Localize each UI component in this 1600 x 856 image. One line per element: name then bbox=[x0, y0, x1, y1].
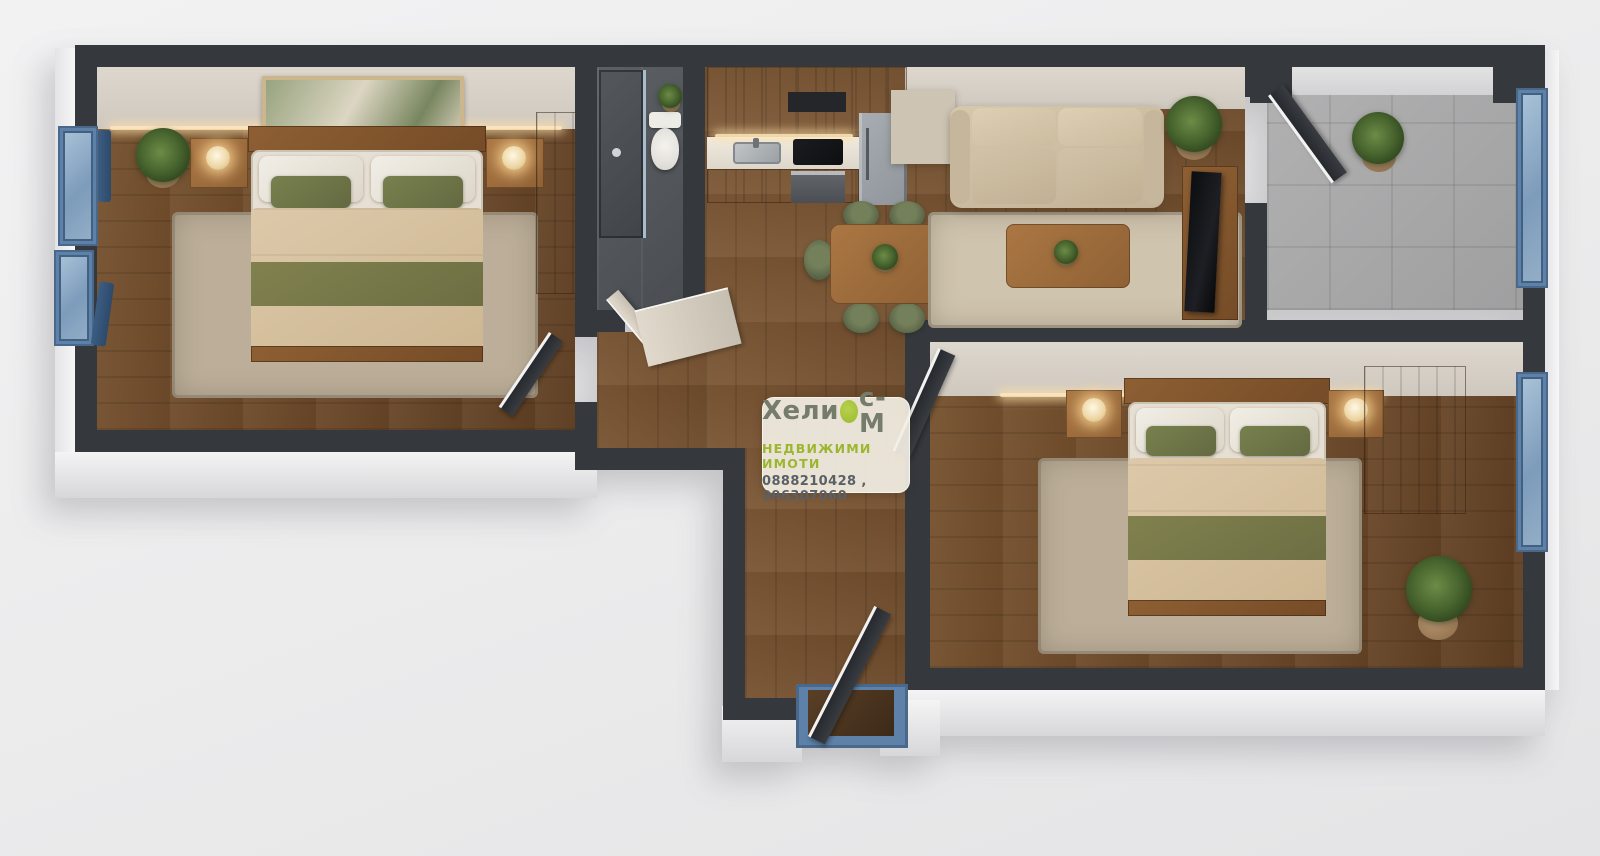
brand-o-icon bbox=[840, 400, 858, 423]
range-hood bbox=[788, 92, 846, 112]
bedroom1-duvet-stripe bbox=[251, 262, 483, 306]
kitchen-cove-light bbox=[715, 134, 853, 138]
bedroom1-pillow-olive-left bbox=[271, 176, 351, 208]
bedroom1-bed-footboard bbox=[251, 346, 483, 362]
floorplan-canvas: Хелис-М НЕДВИЖИМИ ИМОТИ 0888210428 , 096… bbox=[0, 0, 1600, 856]
wall-bathroom-kitchen bbox=[683, 45, 705, 332]
watermark-subtitle: НЕДВИЖИМИ ИМОТИ bbox=[762, 441, 910, 471]
bedroom1-bed bbox=[251, 150, 483, 362]
dining-chair-bottom-right bbox=[889, 303, 925, 333]
shower bbox=[599, 70, 646, 238]
wall-bedroom2-bottom bbox=[905, 668, 1545, 690]
bedroom2-wardrobe bbox=[1364, 366, 1466, 514]
bedroom2-bed-footboard bbox=[1128, 600, 1326, 616]
apartment-floorplan: Хелис-М НЕДВИЖИМИ ИМОТИ 0888210428 , 096… bbox=[0, 0, 1600, 856]
wall-corridor-bottom bbox=[575, 448, 745, 470]
bedroom2-window bbox=[1516, 372, 1548, 552]
balcony-wall-band bbox=[1267, 67, 1523, 95]
sofa-arm-left bbox=[950, 110, 970, 204]
wall-bedroom1-bottom bbox=[75, 430, 597, 452]
wall-hallway-bottom bbox=[723, 698, 803, 720]
exterior-wall-face-bottom-bedroom2 bbox=[905, 690, 1545, 736]
bedroom2-pillow-olive-left bbox=[1146, 426, 1216, 456]
bedroom2-lamp-left bbox=[1082, 398, 1106, 422]
sofa bbox=[950, 106, 1164, 208]
refrigerator-handle bbox=[866, 128, 869, 180]
wall-top bbox=[75, 45, 1545, 67]
sofa-seat-cushion-left bbox=[972, 148, 1056, 204]
bedroom2-bed bbox=[1128, 402, 1326, 616]
watermark-brand: Хелис-М bbox=[762, 385, 910, 437]
bedroom2-pillow-olive-right bbox=[1240, 426, 1310, 456]
watermark-badge: Хелис-М НЕДВИЖИМИ ИМОТИ 0888210428 , 096… bbox=[762, 397, 910, 493]
bedroom1-window-lower bbox=[54, 250, 94, 346]
sofa-back-cushion-right bbox=[1058, 108, 1142, 146]
dining-chair-bottom-left bbox=[843, 303, 879, 333]
bathroom-plant bbox=[658, 84, 682, 108]
sofa-seat-cushion-right bbox=[1058, 148, 1142, 204]
balcony-window-glass bbox=[1521, 93, 1543, 283]
watermark-brand-suffix: с-М bbox=[859, 385, 910, 437]
shower-head bbox=[612, 148, 621, 157]
cooktop bbox=[793, 139, 843, 165]
bedroom1-wardrobe bbox=[536, 112, 578, 294]
bedroom1-window-lower-glass bbox=[59, 255, 89, 341]
bedroom1-window-upper-glass bbox=[63, 131, 93, 241]
toilet-bowl bbox=[651, 128, 679, 170]
dining-plant bbox=[872, 244, 898, 270]
wall-left bbox=[75, 45, 97, 452]
bedroom1-pillow-olive-right bbox=[383, 176, 463, 208]
balcony-window bbox=[1516, 88, 1548, 288]
bedroom1-curtain-upper bbox=[98, 130, 111, 202]
bedroom2-duvet-stripe bbox=[1128, 516, 1326, 560]
oven bbox=[791, 171, 845, 203]
bedroom1-lamp-left bbox=[206, 146, 230, 170]
balcony-floor bbox=[1267, 67, 1523, 310]
wall-hallway-left bbox=[723, 448, 745, 720]
livingroom-plant bbox=[1166, 96, 1222, 152]
wall-bedroom1-bathroom bbox=[575, 45, 597, 337]
sideboard-art-piece bbox=[891, 90, 955, 164]
watermark-brand-prefix: Хели bbox=[762, 398, 839, 424]
bedroom1-window-upper bbox=[58, 126, 98, 246]
wall-bedroom1-door-stub bbox=[575, 402, 597, 452]
bedroom1-bed-headboard bbox=[248, 126, 486, 152]
kitchen-faucet bbox=[753, 138, 759, 148]
bedroom2-bed-headboard bbox=[1124, 378, 1330, 404]
exterior-wall-face-bottom-bedroom1 bbox=[55, 452, 597, 498]
toilet-tank bbox=[649, 112, 681, 128]
bedroom1-lamp-right bbox=[502, 146, 526, 170]
bedroom2-plant bbox=[1406, 556, 1472, 622]
watermark-phones: 0888210428 , 096307060 bbox=[762, 474, 910, 504]
bedroom1-plant bbox=[136, 128, 190, 182]
coffee-table-plant bbox=[1054, 240, 1078, 264]
balcony-plant bbox=[1352, 112, 1404, 164]
wall-living-balcony-lower bbox=[1245, 203, 1267, 330]
bedroom2-window-glass bbox=[1521, 377, 1543, 547]
sofa-arm-right bbox=[1144, 110, 1164, 204]
sofa-back-cushion-left bbox=[972, 108, 1056, 146]
